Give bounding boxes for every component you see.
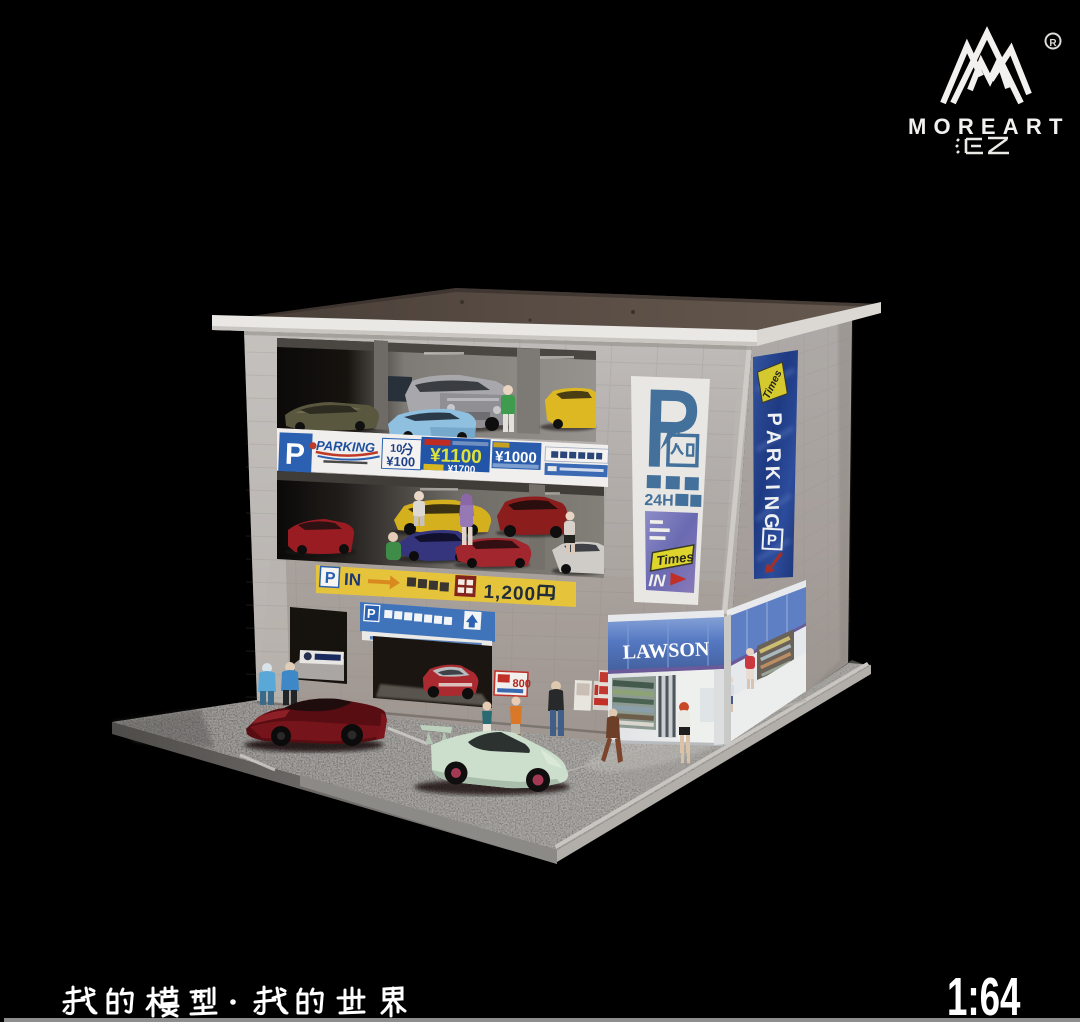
svg-text:IN: IN (344, 570, 362, 590)
svg-text:P: P (366, 606, 376, 622)
svg-text:I: I (761, 484, 783, 490)
svg-text:A: A (762, 429, 784, 444)
svg-text:P: P (763, 412, 785, 426)
svg-text:LAWSON: LAWSON (622, 638, 710, 663)
svg-text:MOREART: MOREART (908, 114, 1070, 139)
svg-text:800: 800 (512, 678, 531, 691)
svg-text:1:64: 1:64 (947, 966, 1021, 1022)
svg-text:¥100: ¥100 (386, 453, 415, 469)
svg-text:R: R (1049, 38, 1057, 49)
svg-text:P: P (284, 438, 305, 472)
svg-text:¥1700: ¥1700 (447, 464, 476, 476)
svg-text:P: P (766, 532, 777, 550)
svg-text:R: R (762, 447, 785, 463)
svg-text:1,200: 1,200 (483, 582, 537, 606)
svg-text:K: K (761, 465, 784, 481)
svg-text:G: G (760, 513, 783, 529)
svg-text:N: N (760, 495, 782, 510)
svg-text:IN: IN (648, 571, 666, 590)
svg-text:24H: 24H (644, 492, 674, 510)
svg-text:P: P (324, 570, 336, 588)
